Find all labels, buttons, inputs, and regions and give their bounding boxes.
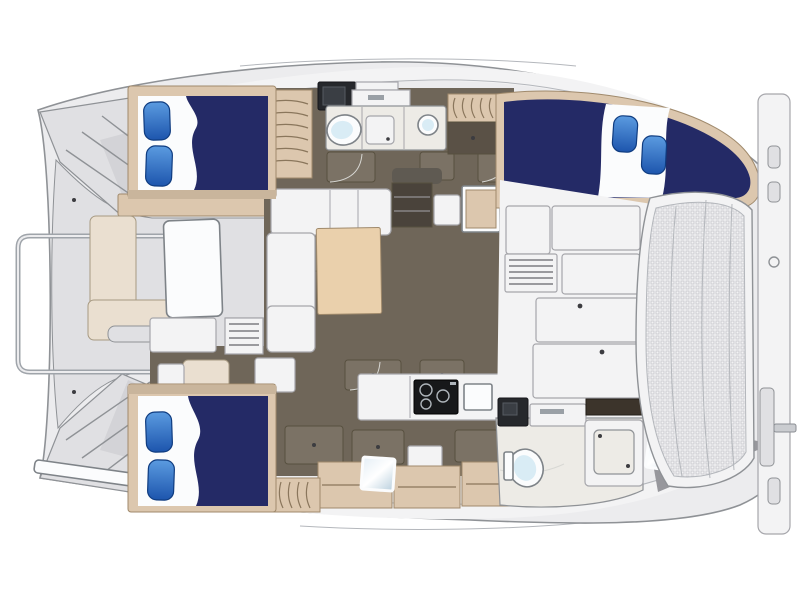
cockpit-table (163, 219, 222, 318)
stove-knob (450, 382, 456, 385)
toilet-tank (504, 452, 513, 480)
nav-seat (434, 195, 460, 225)
door-handle (312, 443, 316, 447)
berth-lower-left (128, 384, 276, 512)
hatch-strip (356, 82, 398, 90)
door-handle (376, 445, 380, 449)
trampoline-platform (636, 192, 754, 487)
shower-pan (366, 116, 394, 144)
sink-basin (422, 119, 434, 131)
door-handle (471, 136, 475, 140)
pole-handle (760, 388, 774, 466)
pillow (147, 460, 174, 501)
louver-vent-2 (225, 318, 263, 354)
counter-sink (323, 87, 345, 105)
seat-button (578, 304, 583, 309)
steps-block (392, 183, 432, 227)
sofa-corner-seat (267, 306, 315, 352)
pole-pin (774, 424, 796, 432)
pillow (612, 115, 638, 153)
cockpit (497, 180, 652, 420)
brown-counter (586, 399, 643, 415)
companionway-steps (392, 183, 432, 227)
deck-fitting-dot (72, 390, 76, 394)
sink-basin (503, 403, 517, 415)
floor-mat (392, 168, 442, 184)
catamaran-floor-plan (0, 0, 800, 600)
cockpit-bench (506, 206, 550, 254)
cabinet-door (327, 152, 375, 182)
pole-fitting (768, 478, 780, 504)
faucet (540, 409, 564, 414)
deck-fitting-dot (72, 198, 76, 202)
trampoline-net (646, 202, 746, 477)
davit-pole (758, 94, 796, 534)
shower-drain (626, 464, 630, 468)
cockpit-seat-wide (533, 344, 641, 398)
shower-drain (386, 137, 390, 141)
pole-fitting (768, 182, 780, 202)
desk (150, 318, 216, 352)
vanity-counter (530, 404, 586, 426)
sofa-left-seat (267, 233, 315, 313)
glass-hatch-galley (361, 457, 395, 491)
shower-fitting (598, 434, 602, 438)
galley-sink (464, 384, 492, 410)
cockpit-bench (562, 254, 640, 294)
pillow (145, 146, 172, 187)
bed-sill (128, 190, 276, 199)
shower-upper (366, 116, 394, 144)
wood-cabinet (466, 190, 496, 228)
cockpit-bench (552, 206, 640, 250)
bed-duvet (186, 96, 268, 190)
cockpit-seat-wide (536, 298, 640, 342)
deck-hatch (108, 326, 156, 342)
head-lower-right (496, 398, 643, 507)
louvered-table (505, 254, 557, 292)
stove-top (414, 380, 458, 414)
galley-stove (414, 380, 458, 414)
pillow (641, 135, 667, 174)
wood-steps-right (448, 94, 500, 122)
pillow (145, 412, 172, 453)
bed-duvet (188, 396, 268, 506)
shower-lower (585, 420, 643, 486)
pole-fitting (768, 146, 780, 168)
salon-table (316, 227, 381, 314)
seat-button (600, 350, 605, 355)
bed-sill (128, 385, 276, 394)
faucet (368, 95, 384, 100)
floor-plan-svg (0, 0, 800, 600)
cabinet-door (455, 430, 499, 462)
round-sink (418, 115, 438, 135)
berth-upper-left (128, 86, 276, 199)
pillow (143, 102, 170, 141)
